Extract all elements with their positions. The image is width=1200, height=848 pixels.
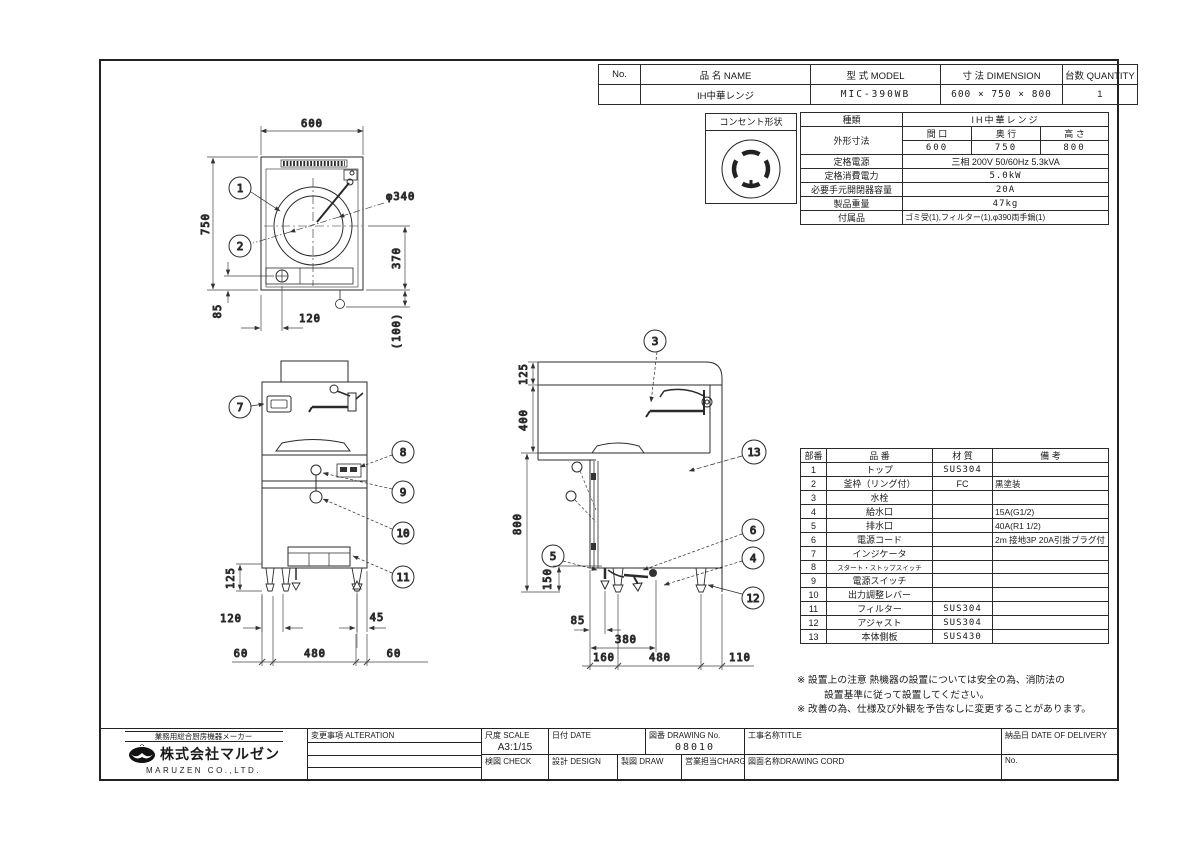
part-material	[933, 519, 993, 533]
parts-row: 4給水口15A(G1/2)	[801, 505, 1109, 519]
front-dim-480: 480	[304, 648, 326, 660]
plan-dim-width: 600	[301, 118, 323, 130]
title-block: 業務用総合厨房機器メーカー 株式会社マルゼン MARUZEN CO.,LTD. …	[100, 728, 1118, 779]
alteration-row-divider	[308, 742, 481, 743]
spec-height-value: 800	[1041, 141, 1109, 155]
side-dim-380: 380	[615, 634, 637, 646]
outlet-shape-box: コンセント形状	[705, 113, 797, 204]
note-install-2: 設置基準に従って設置してください。	[824, 689, 1119, 704]
parts-row: 2釜枠（リング付）FC黒塗装	[801, 477, 1109, 491]
side-dim-480: 480	[649, 652, 671, 664]
part-no: 7	[801, 547, 827, 561]
balloon-3: 3	[644, 330, 666, 402]
spec-weight-label: 製品重量	[801, 197, 903, 211]
draw-label: 製図 DRAW	[621, 756, 678, 767]
parts-row: 7インジケータ	[801, 547, 1109, 561]
part-note	[993, 547, 1109, 561]
plan-dim-370: 370	[391, 247, 403, 269]
side-dim-160: 160	[593, 652, 615, 664]
scale-value: A3:1/15	[485, 742, 545, 753]
drawing-name-label: 図面名称DRAWING CORD	[748, 756, 998, 767]
part-no: 10	[801, 588, 827, 602]
header-table: No. 品 名 NAME 型 式 MODEL 寸 法 DIMENSION 台数 …	[598, 64, 1138, 105]
side-dim-800: 800	[512, 513, 524, 535]
header-col-dimension: 寸 法 DIMENSION	[941, 65, 1063, 85]
balloon-1: 1	[229, 177, 280, 211]
spec-width-label: 間 口	[903, 127, 972, 141]
parts-col-no: 部番	[801, 449, 827, 463]
drawing-name-cell: 図面名称DRAWING CORD	[744, 754, 1001, 780]
spec-breaker-value: 20A	[903, 183, 1109, 197]
spec-consumption-label: 定格消費電力	[801, 169, 903, 183]
parts-row: 5排水口40A(R1 1/2)	[801, 519, 1109, 533]
maruzen-logo-icon	[127, 744, 157, 764]
spec-power-label: 定格電源	[801, 155, 903, 169]
kick-grill	[288, 547, 350, 566]
header-col-no: No.	[599, 65, 641, 85]
design-cell: 設計 DESIGN	[548, 754, 617, 780]
part-no: 9	[801, 574, 827, 588]
spec-dims-label: 外形寸法	[801, 127, 903, 155]
item-model: MIC-390WB	[811, 85, 941, 105]
item-quantity: 1	[1063, 85, 1138, 105]
part-no: 12	[801, 616, 827, 630]
spec-weight-value: 47kg	[903, 197, 1109, 211]
note-install-1: ※ 設置上の注意 熱機器の設置については安全の為、消防法の	[797, 674, 1119, 689]
maker-tagline: 業務用総合厨房機器メーカー	[125, 731, 283, 742]
output-lever	[310, 475, 322, 503]
plan-dim-100: (100)	[391, 313, 403, 350]
parts-row: 13本体側板SUS430	[801, 630, 1109, 644]
parts-row: 8スタート・ストップスイッチ	[801, 561, 1109, 574]
side-view: 125 400 800 150 85 380 160 480 110 3	[512, 330, 766, 670]
drawing-sheet: 600	[0, 0, 1200, 848]
part-no: 3	[801, 491, 827, 505]
part-material	[933, 533, 993, 547]
alteration-cell: 変更事項 ALTERATION	[307, 729, 481, 780]
spec-consumption-value: 5.0kW	[903, 169, 1109, 183]
part-note: 40A(R1 1/2)	[993, 519, 1109, 533]
spec-depth-value: 750	[972, 141, 1041, 155]
balloon-8: 8	[360, 441, 414, 467]
delivery-label: 納品日 DATE OF DELIVERY	[1005, 730, 1115, 741]
part-material	[933, 574, 993, 588]
part-name: 排水口	[827, 519, 933, 533]
part-name: スタート・ストップスイッチ	[827, 561, 933, 574]
header-col-quantity: 台数 QUANTITY	[1063, 65, 1138, 85]
item-no	[599, 85, 641, 105]
balloon-6: 6	[643, 519, 764, 570]
balloon-12: 12	[708, 585, 764, 609]
scale-label: 尺度 SCALE	[485, 730, 545, 741]
legs-front	[266, 568, 362, 648]
balloon-11: 11	[353, 556, 414, 588]
svg-text:1: 1	[237, 182, 244, 195]
faucet-side	[646, 389, 712, 417]
spec-kind-value: IH中華レンジ	[903, 113, 1109, 127]
alteration-row-divider	[308, 767, 481, 768]
svg-text:9: 9	[400, 486, 407, 499]
part-note	[993, 463, 1109, 477]
title-cell: 工事名称TITLE	[744, 729, 1001, 754]
part-material	[933, 588, 993, 602]
part-no: 13	[801, 630, 827, 644]
svg-text:13: 13	[747, 446, 760, 459]
company-name: 株式会社マルゼン	[160, 744, 280, 764]
svg-text:6: 6	[750, 524, 757, 537]
part-no: 5	[801, 519, 827, 533]
faucet-plan	[317, 170, 357, 222]
drain-cap	[276, 270, 288, 282]
balloon-10: 10	[323, 499, 414, 544]
front-dim-60a: 60	[234, 648, 249, 660]
design-label: 設計 DESIGN	[552, 756, 614, 767]
part-no: 4	[801, 505, 827, 519]
part-note	[993, 630, 1109, 644]
balloon-7: 7	[229, 396, 264, 418]
parts-row: 6電源コード2m 接地3P 20A引掛プラグ付	[801, 533, 1109, 547]
part-material	[933, 547, 993, 561]
header-row: IH中華レンジ MIC-390WB 600 × 750 × 800 1	[599, 85, 1138, 105]
scale-cell: 尺度 SCALE A3:1/15	[481, 729, 548, 754]
svg-text:12: 12	[746, 592, 759, 605]
notes: ※ 設置上の注意 熱機器の設置については安全の為、消防法の 設置基準に従って設置…	[797, 674, 1119, 718]
front-dim-120: 120	[220, 613, 242, 625]
charge-label: 営業担当CHARGE	[685, 756, 741, 767]
spec-height-label: 高 さ	[1041, 127, 1109, 141]
plan-dim-85: 85	[212, 304, 224, 319]
check-label: 検図 CHECK	[485, 756, 545, 767]
part-name: 水栓	[827, 491, 933, 505]
parts-row: 9電源スイッチ	[801, 574, 1109, 588]
part-name: トップ	[827, 463, 933, 477]
item-dimension: 600 × 750 × 800	[941, 85, 1063, 105]
part-note: 黒塗装	[993, 477, 1109, 491]
part-no: 11	[801, 602, 827, 616]
drain-assembly	[601, 568, 657, 591]
side-dim-150: 150	[542, 568, 554, 590]
date-cell: 日付 DATE	[548, 729, 645, 754]
drawing-no-value: 08010	[649, 742, 741, 753]
parts-row: 12アジャストSUS304	[801, 616, 1109, 630]
side-dim-110: 110	[729, 652, 751, 664]
part-material	[933, 505, 993, 519]
part-name: アジャスト	[827, 616, 933, 630]
front-dim-60b: 60	[387, 648, 402, 660]
spec-accessories-label: 付属品	[801, 211, 903, 225]
switch-panel	[337, 464, 361, 477]
part-no: 6	[801, 533, 827, 547]
plan-dim-circle: φ340	[386, 191, 415, 203]
svg-text:3: 3	[652, 335, 659, 348]
parts-row: 1トップSUS304	[801, 463, 1109, 477]
parts-row: 3水栓	[801, 491, 1109, 505]
part-name: 電源スイッチ	[827, 574, 933, 588]
maker-block: 業務用総合厨房機器メーカー 株式会社マルゼン MARUZEN CO.,LTD.	[100, 729, 307, 780]
parts-row: 10出力調整レバー	[801, 588, 1109, 602]
drawing-no-cell: 図番 DRAWING No. 08010	[645, 729, 744, 754]
company-name-en: MARUZEN CO.,LTD.	[103, 766, 304, 775]
part-material: SUS304	[933, 616, 993, 630]
part-name: 本体側板	[827, 630, 933, 644]
part-name: インジケータ	[827, 547, 933, 561]
part-note	[993, 561, 1109, 574]
part-material	[933, 561, 993, 574]
filter-panel	[591, 461, 598, 568]
filter-knobs	[566, 462, 596, 522]
front-dim-45: 45	[370, 612, 385, 624]
alteration-row-divider	[308, 755, 481, 756]
part-name: 給水口	[827, 505, 933, 519]
part-note	[993, 491, 1109, 505]
note-change: ※ 改善の為、仕様及び外観を予告なしに変更することがあります。	[797, 703, 1119, 718]
part-name: 出力調整レバー	[827, 588, 933, 602]
svg-text:2: 2	[237, 240, 244, 253]
plan-dim-depth: 750	[200, 213, 212, 235]
part-name: 電源コード	[827, 533, 933, 547]
check-cell: 検図 CHECK	[481, 754, 548, 780]
part-no: 8	[801, 561, 827, 574]
part-material: SUS304	[933, 463, 993, 477]
delivery-cell: 納品日 DATE OF DELIVERY	[1001, 729, 1118, 754]
svg-text:10: 10	[396, 527, 409, 540]
delivery-no-label: No.	[1005, 756, 1115, 765]
part-material: SUS430	[933, 630, 993, 644]
plan-view: 600	[200, 118, 415, 349]
front-dim-125: 125	[225, 567, 237, 589]
spec-power-value: 三相 200V 50/60Hz 5.3kVA	[903, 155, 1109, 169]
spec-depth-label: 奥 行	[972, 127, 1041, 141]
part-note	[993, 574, 1109, 588]
side-dim-400: 400	[518, 409, 530, 431]
delivery-no-cell: No.	[1001, 754, 1118, 780]
side-dim-85: 85	[571, 615, 586, 627]
title-label: 工事名称TITLE	[748, 730, 998, 741]
alteration-label: 変更事項 ALTERATION	[311, 731, 394, 740]
svg-text:8: 8	[400, 446, 407, 459]
svg-text:4: 4	[750, 552, 757, 565]
part-material: FC	[933, 477, 993, 491]
spec-table: 種類 IH中華レンジ 外形寸法 間 口 奥 行 高 さ 600 750 800 …	[800, 112, 1109, 225]
part-note: 15A(G1/2)	[993, 505, 1109, 519]
outlet-shape-label: コンセント形状	[706, 114, 796, 131]
spec-kind-label: 種類	[801, 113, 903, 127]
part-no: 2	[801, 477, 827, 491]
parts-row: 11フィルターSUS304	[801, 602, 1109, 616]
part-name: フィルター	[827, 602, 933, 616]
balloon-2: 2	[229, 235, 251, 257]
date-label: 日付 DATE	[552, 730, 642, 741]
drawing-no-label: 図番 DRAWING No.	[649, 730, 741, 741]
parts-table: 部番 品 番 材 質 備 考 1トップSUS304 2釜枠（リング付）FC黒塗装…	[800, 448, 1109, 644]
header-col-model: 型 式 MODEL	[811, 65, 941, 85]
part-material	[933, 491, 993, 505]
svg-text:7: 7	[237, 401, 244, 414]
plan-dim-120: 120	[299, 313, 321, 325]
header-col-name: 品 名 NAME	[641, 65, 811, 85]
svg-text:5: 5	[550, 550, 557, 563]
draw-cell: 製図 DRAW	[617, 754, 681, 780]
part-note	[993, 616, 1109, 630]
charge-cell: 営業担当CHARGE	[681, 754, 744, 780]
balloon-4: 4	[664, 547, 764, 585]
parts-col-note: 備 考	[993, 449, 1109, 463]
spec-width-value: 600	[903, 141, 972, 155]
part-note	[993, 602, 1109, 616]
svg-text:11: 11	[396, 571, 409, 584]
part-material: SUS304	[933, 602, 993, 616]
front-view: 125 120 45 60 480 60	[220, 361, 428, 666]
balloon-13: 13	[689, 440, 766, 471]
part-name: 釜枠（リング付）	[827, 477, 933, 491]
item-name: IH中華レンジ	[641, 85, 811, 105]
faucet-front	[309, 385, 363, 412]
part-note	[993, 588, 1109, 602]
parts-col-name: 品 番	[827, 449, 933, 463]
legs-side	[613, 568, 706, 592]
part-no: 1	[801, 463, 827, 477]
part-note: 2m 接地3P 20A引掛プラグ付	[993, 533, 1109, 547]
parts-col-material: 材 質	[933, 449, 993, 463]
power-switch	[311, 465, 321, 475]
spec-breaker-label: 必要手元開閉器容量	[801, 183, 903, 197]
side-dim-125: 125	[518, 363, 530, 385]
spec-accessories-value: ゴミ受(1),フィルター(1),φ390両手鍋(1)	[903, 211, 1109, 225]
